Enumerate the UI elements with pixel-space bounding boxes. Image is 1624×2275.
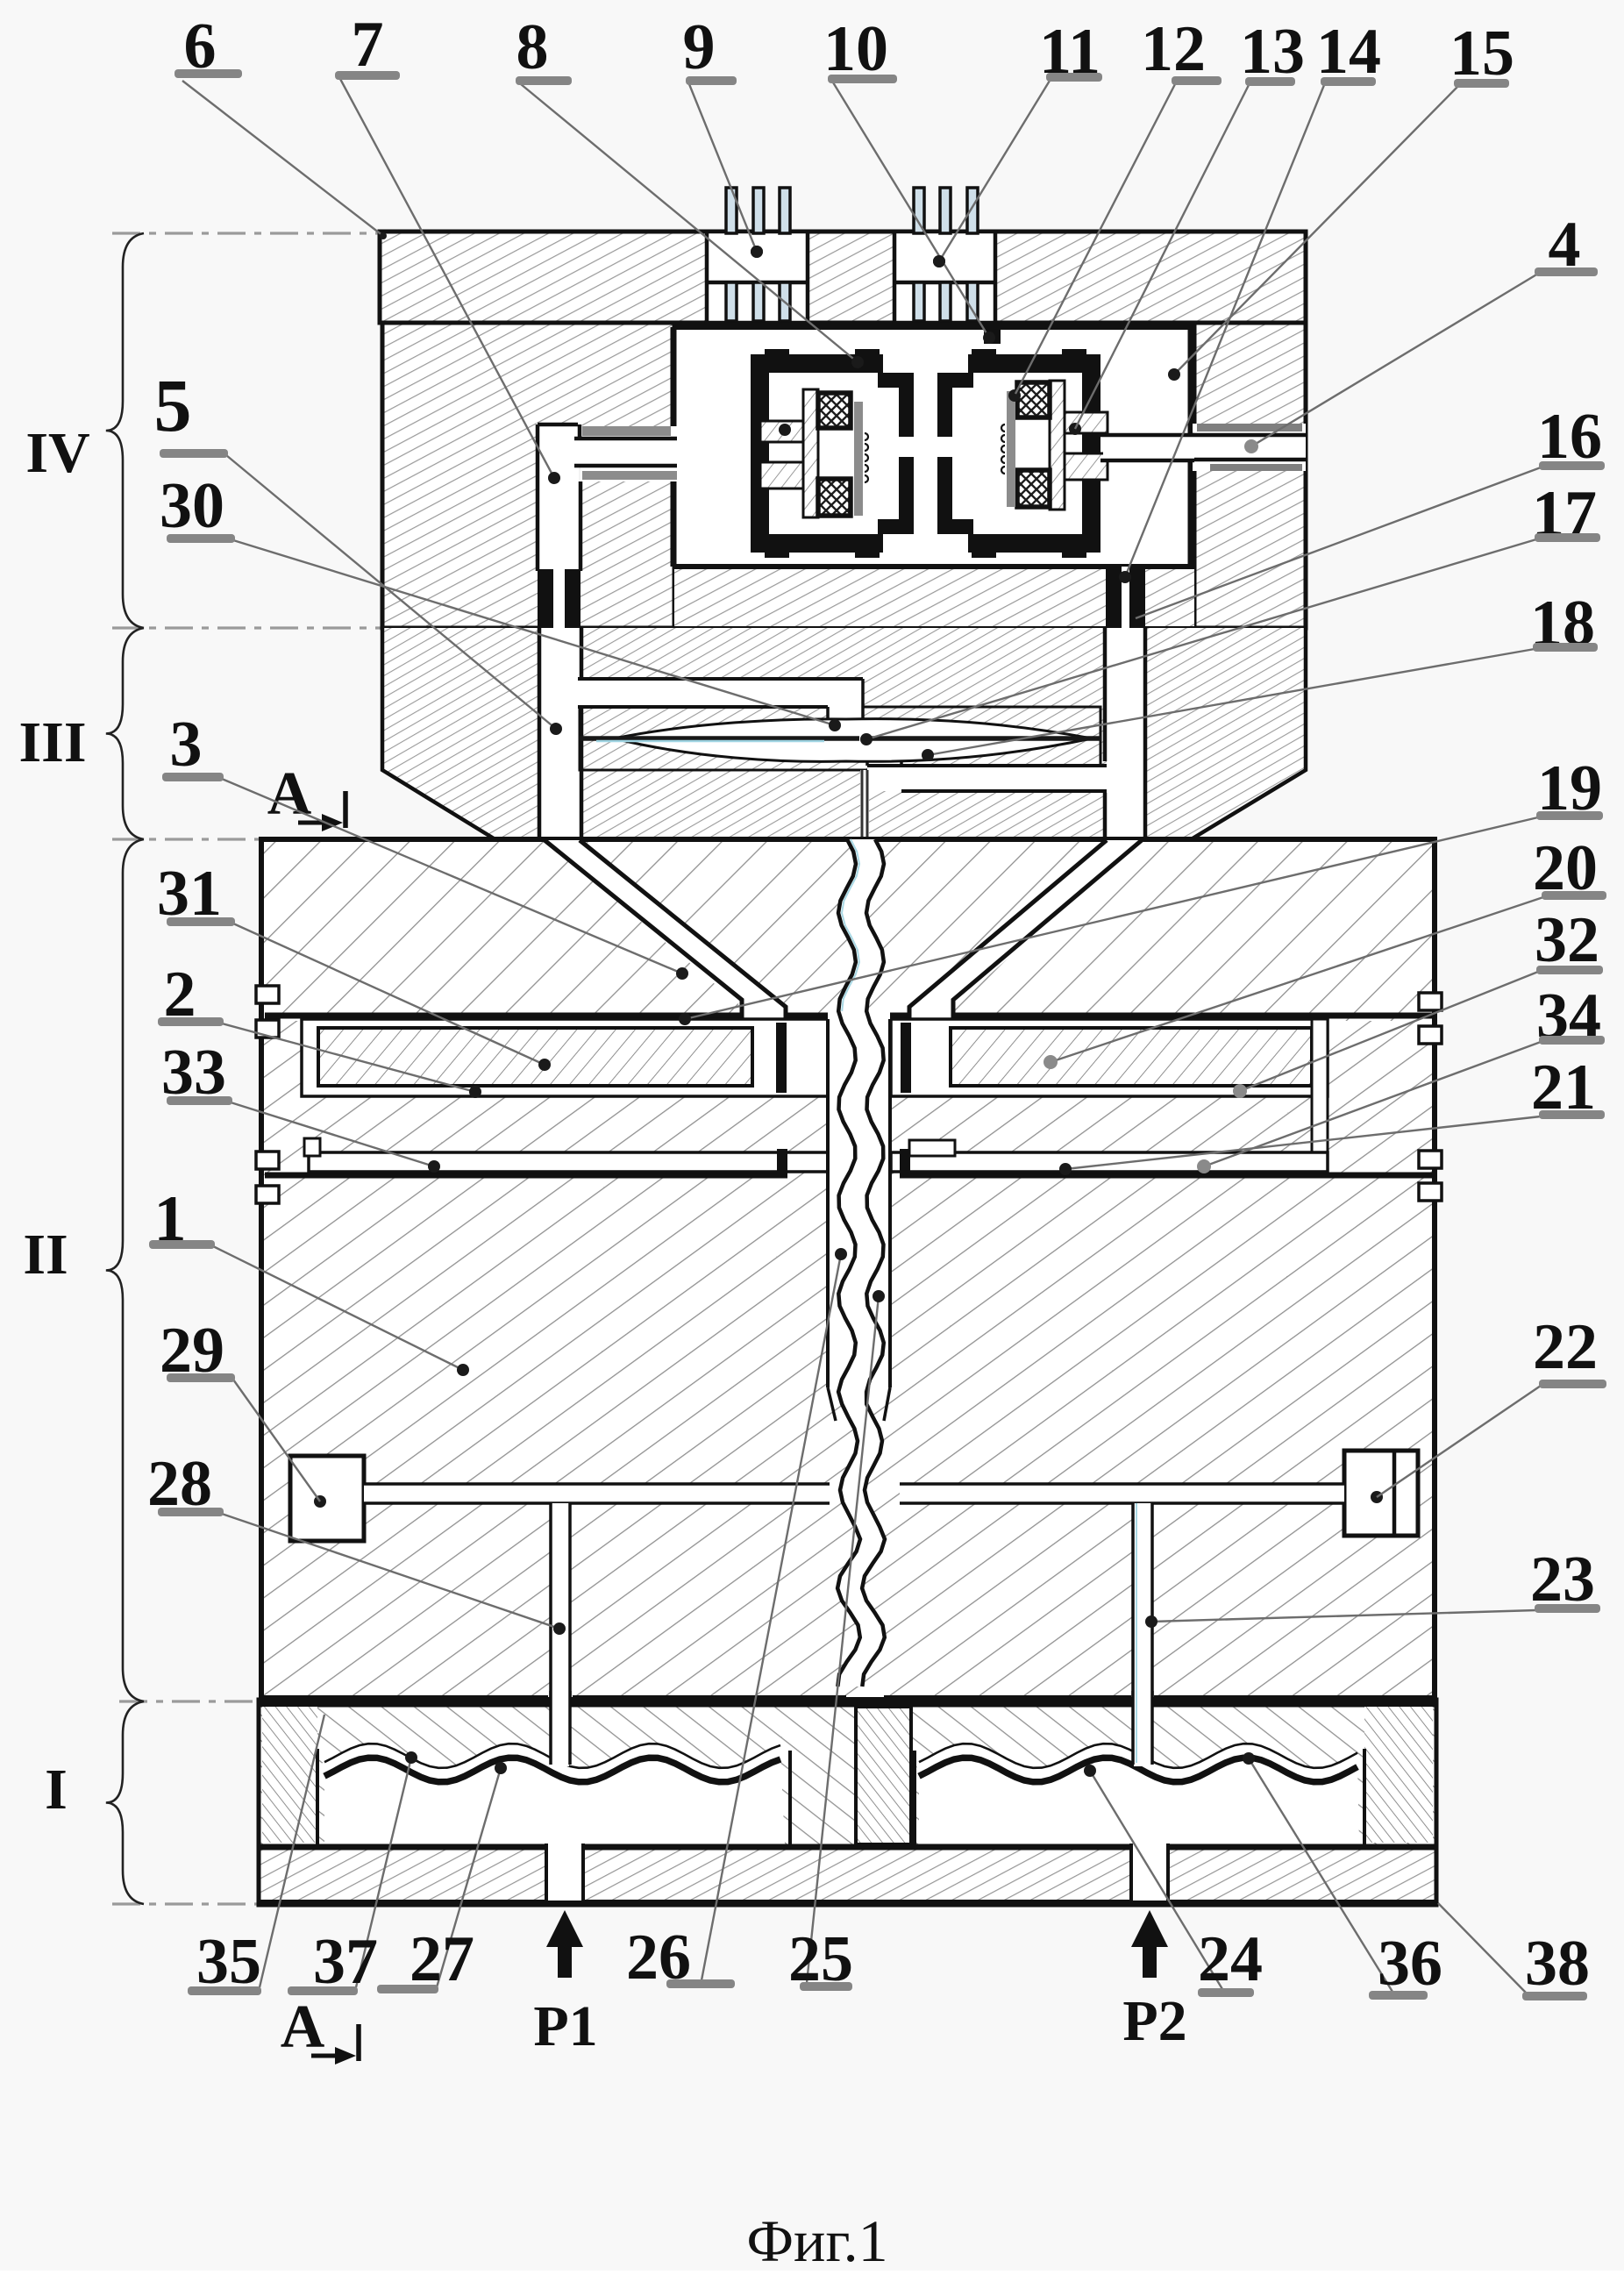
svg-text:3: 3 (170, 709, 203, 781)
svg-text:III: III (18, 710, 86, 774)
svg-text:5: 5 (154, 363, 192, 447)
svg-text:14: 14 (1316, 16, 1381, 88)
svg-text:IV: IV (25, 421, 89, 485)
svg-text:9: 9 (683, 11, 716, 83)
svg-text:II: II (23, 1223, 68, 1287)
svg-text:38: 38 (1525, 1928, 1590, 2000)
svg-text:30: 30 (160, 470, 224, 542)
svg-text:P2: P2 (1122, 1989, 1186, 2053)
svg-text:А: А (281, 1993, 325, 2061)
svg-text:15: 15 (1449, 18, 1514, 89)
svg-text:I: I (45, 1758, 68, 1822)
svg-text:36: 36 (1378, 1928, 1442, 2000)
svg-text:8: 8 (516, 11, 549, 83)
svg-text:32: 32 (1535, 904, 1599, 976)
svg-text:22: 22 (1533, 1311, 1598, 1383)
svg-text:13: 13 (1240, 16, 1305, 88)
svg-text:А: А (267, 760, 312, 828)
svg-text:24: 24 (1198, 1923, 1263, 1995)
svg-text:27: 27 (410, 1923, 474, 1995)
svg-text:7: 7 (352, 9, 384, 81)
svg-text:P1: P1 (533, 1994, 597, 2058)
svg-text:12: 12 (1141, 13, 1206, 85)
svg-text:10: 10 (823, 13, 888, 85)
svg-text:Фиг.1: Фиг.1 (746, 2207, 887, 2271)
